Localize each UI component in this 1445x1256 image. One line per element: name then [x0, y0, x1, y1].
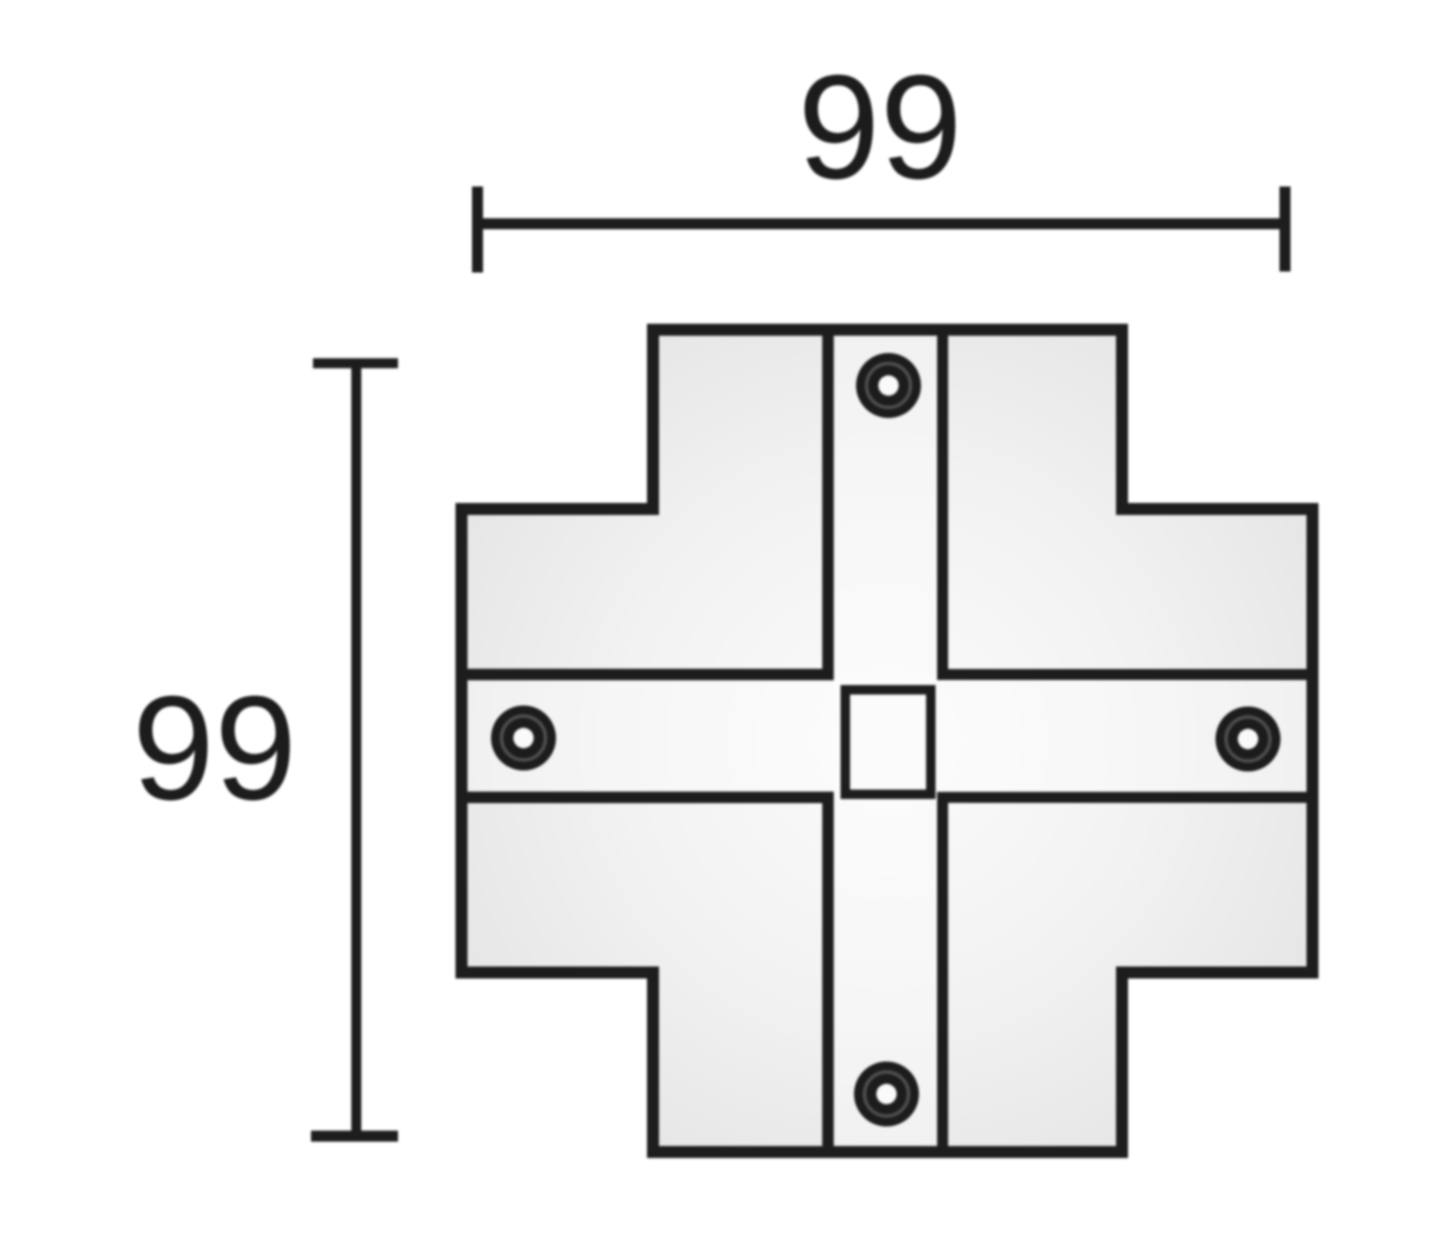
svg-text:99: 99 — [798, 45, 963, 210]
svg-text:99: 99 — [132, 666, 297, 831]
